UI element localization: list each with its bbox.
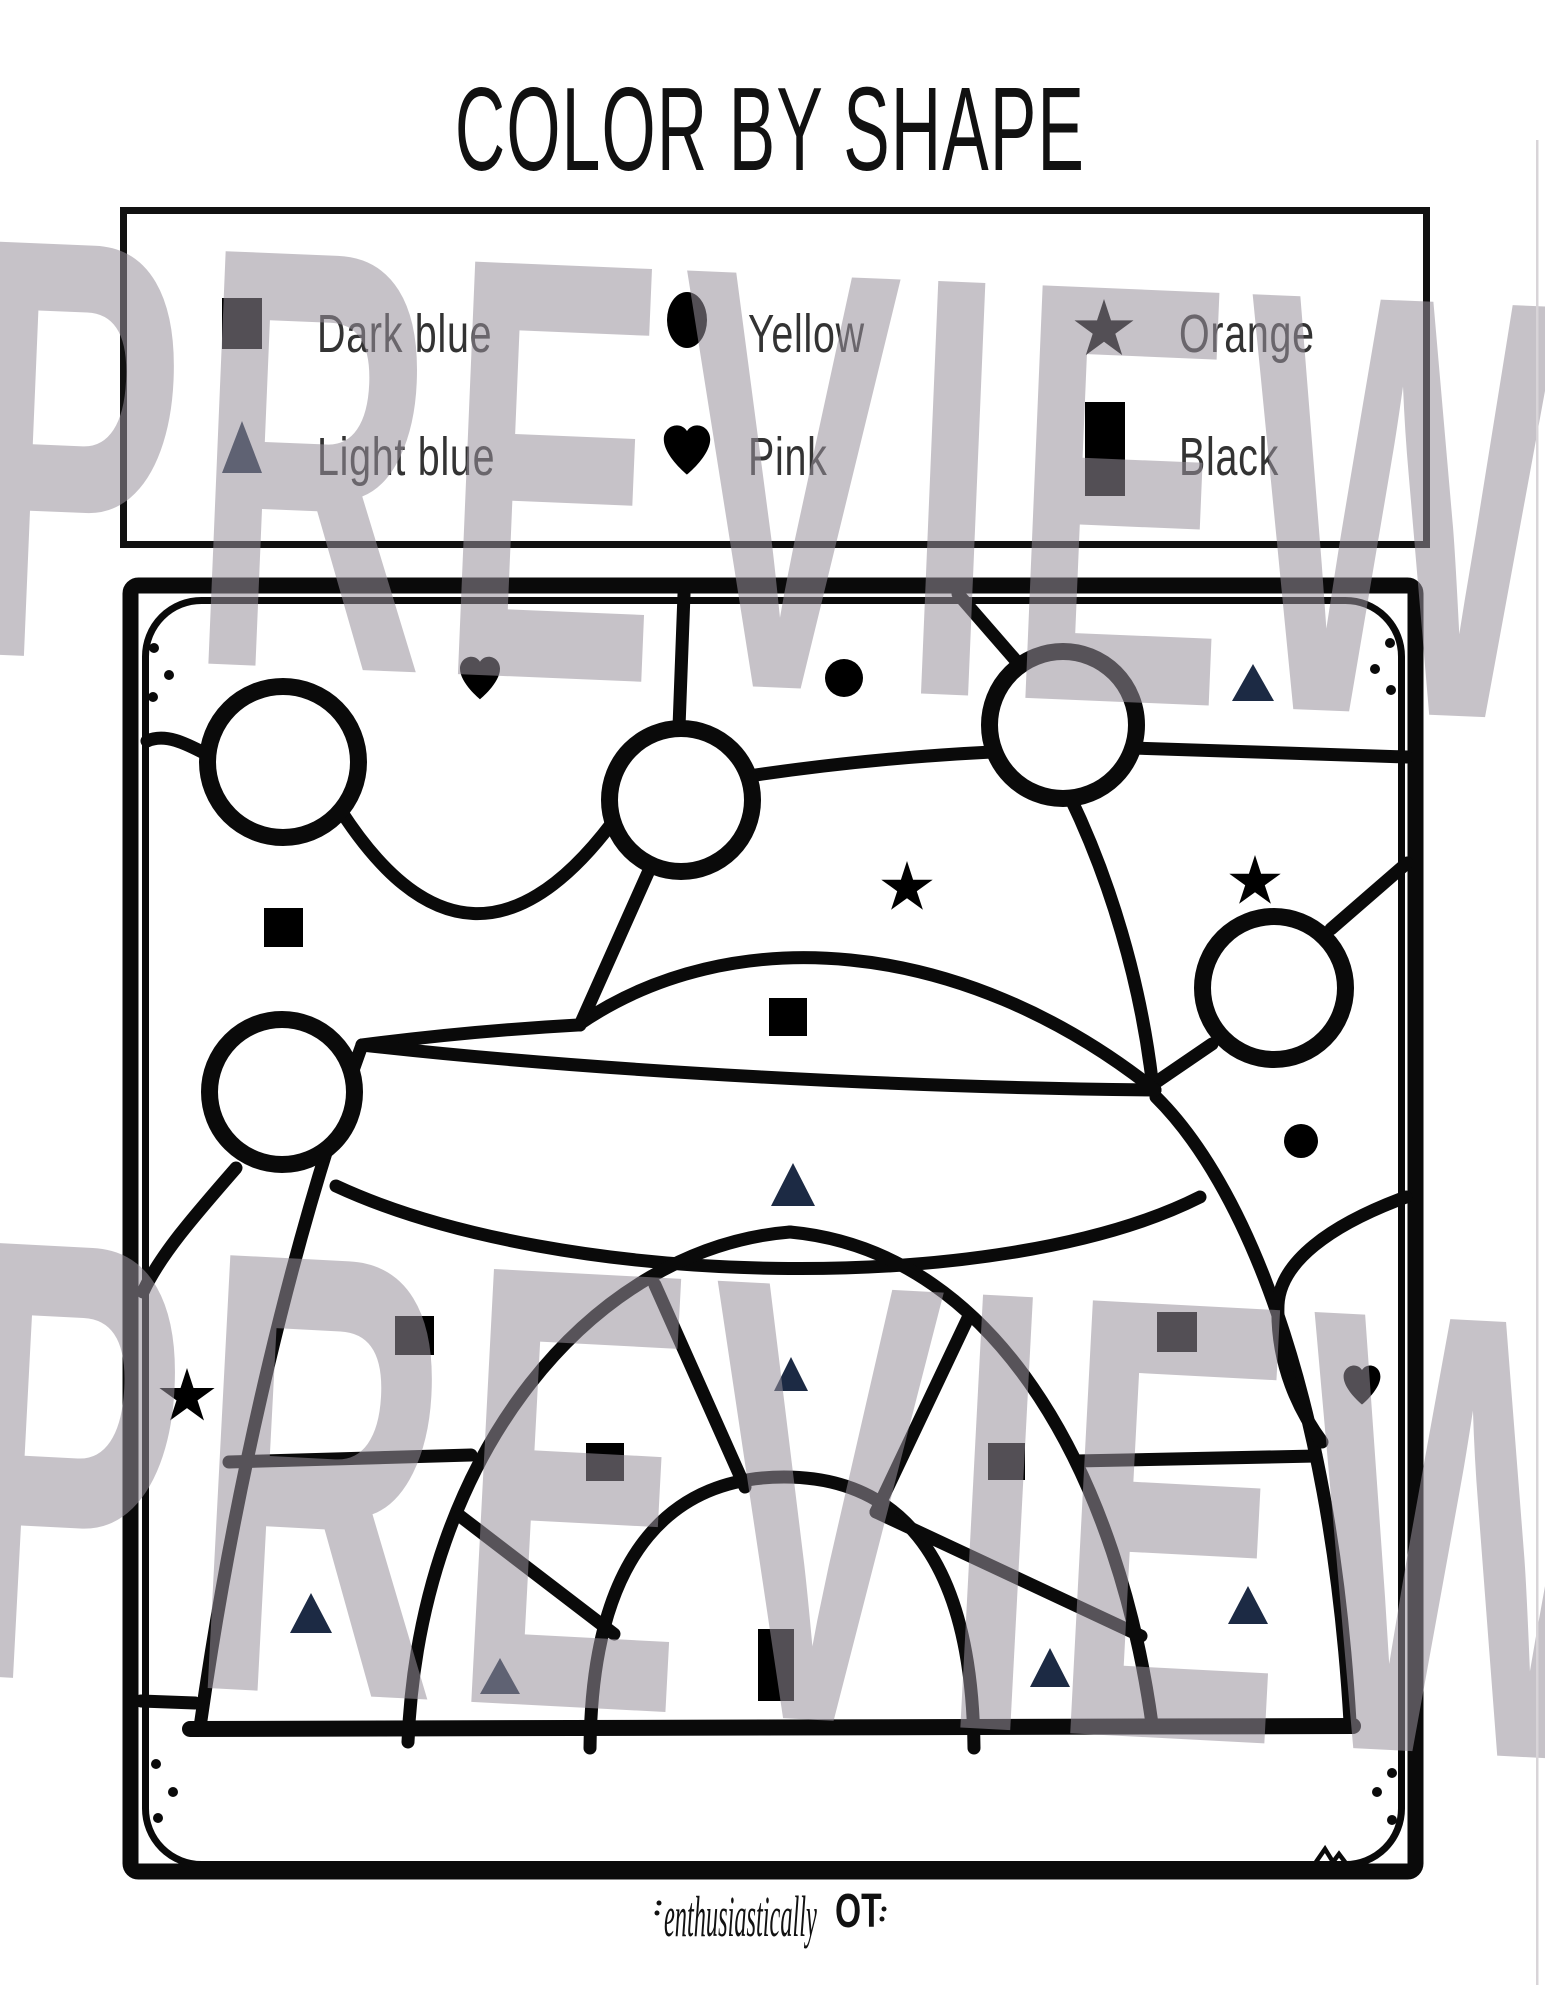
svg-text:enthusiastically: enthusiastically: [664, 1884, 817, 1949]
svg-text:PREVIEW: PREVIEW: [0, 1105, 1545, 1897]
svg-text:PREVIEW: PREVIEW: [0, 112, 1545, 848]
svg-text:OT: OT: [835, 1883, 882, 1937]
